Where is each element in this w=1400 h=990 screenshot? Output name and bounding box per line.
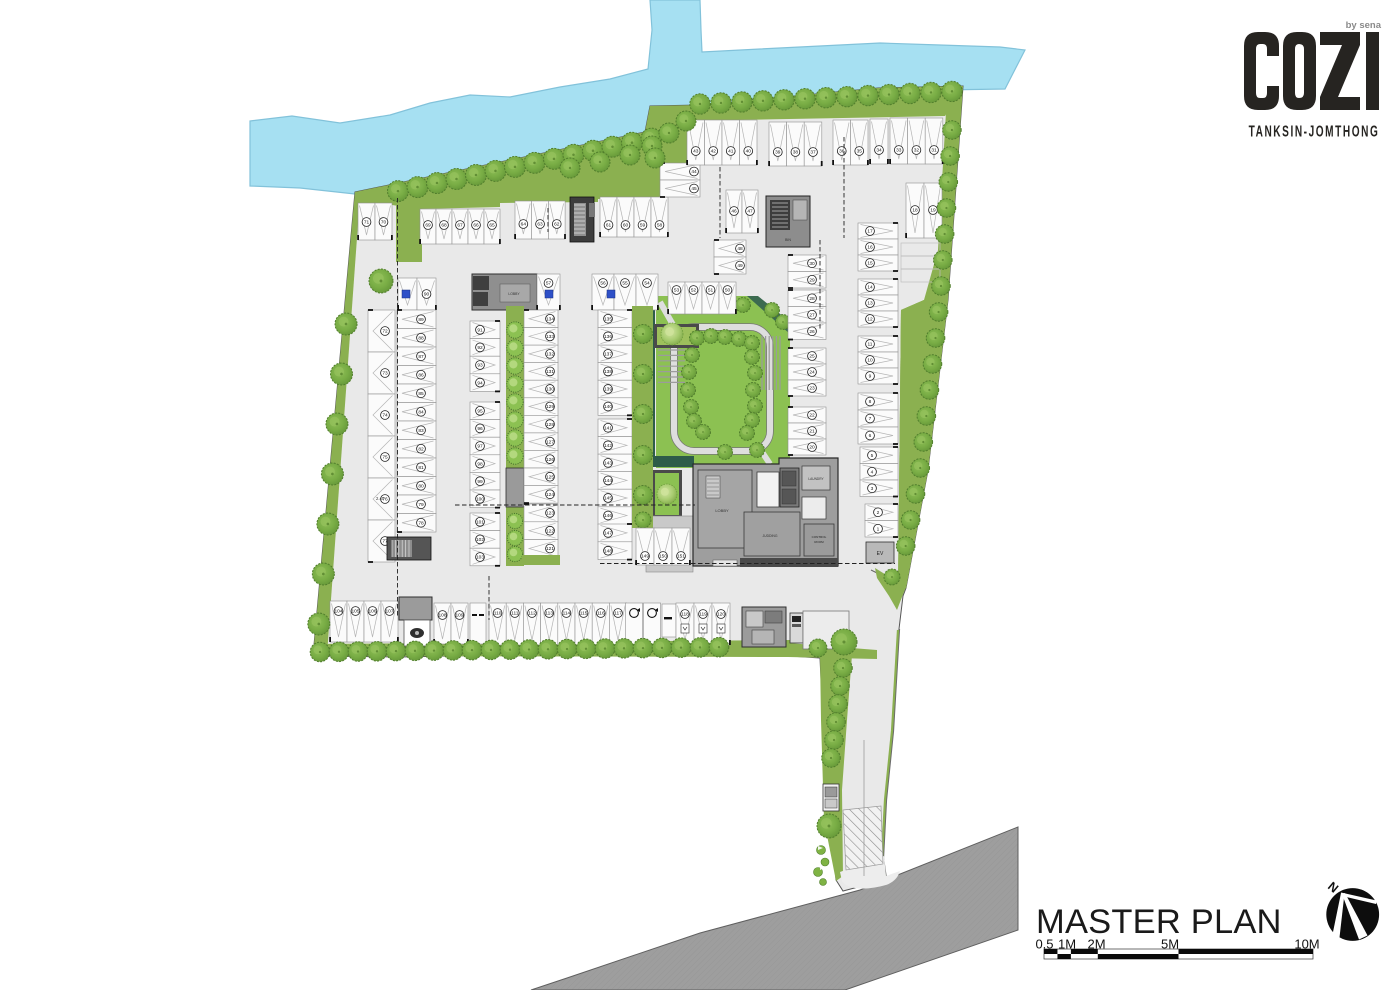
svg-text:103: 103	[476, 555, 484, 561]
svg-text:7: 7	[869, 416, 872, 422]
svg-text:20: 20	[809, 445, 815, 451]
svg-text:124: 124	[546, 492, 554, 498]
svg-text:35: 35	[857, 149, 863, 155]
svg-text:109: 109	[455, 613, 463, 619]
svg-text:60: 60	[623, 223, 629, 229]
svg-text:44: 44	[691, 169, 697, 175]
svg-text:97: 97	[477, 444, 483, 450]
svg-text:51: 51	[708, 288, 714, 294]
svg-text:14: 14	[867, 285, 873, 291]
svg-text:95: 95	[477, 409, 483, 415]
svg-text:146: 146	[604, 513, 612, 519]
svg-text:112: 112	[528, 611, 536, 617]
svg-text:108: 108	[438, 613, 446, 619]
svg-text:41: 41	[728, 149, 734, 155]
svg-text:31: 31	[931, 148, 937, 154]
svg-text:105: 105	[351, 609, 359, 615]
svg-text:10: 10	[867, 358, 873, 364]
svg-text:136: 136	[604, 334, 612, 340]
svg-text:96: 96	[477, 426, 483, 432]
svg-text:6: 6	[869, 433, 872, 439]
svg-text:107: 107	[385, 609, 393, 615]
svg-text:115: 115	[580, 611, 588, 617]
svg-text:132: 132	[546, 352, 554, 358]
svg-text:119: 119	[699, 612, 707, 618]
svg-text:144: 144	[604, 478, 612, 484]
svg-text:EV: EV	[877, 551, 884, 557]
svg-text:138: 138	[604, 369, 612, 375]
svg-text:137: 137	[604, 352, 612, 358]
svg-text:67: 67	[457, 223, 463, 229]
svg-text:121: 121	[546, 546, 554, 552]
svg-text:30: 30	[809, 261, 815, 267]
svg-text:by sena: by sena	[1346, 20, 1382, 31]
svg-text:9: 9	[869, 374, 872, 380]
svg-text:4: 4	[871, 469, 874, 475]
svg-text:94: 94	[477, 380, 483, 386]
svg-text:73: 73	[382, 371, 388, 377]
svg-text:88: 88	[418, 335, 424, 341]
svg-text:89: 89	[418, 317, 424, 323]
svg-text:46: 46	[731, 209, 737, 215]
svg-text:11: 11	[868, 342, 873, 348]
svg-text:126: 126	[546, 457, 554, 463]
svg-text:52: 52	[691, 288, 697, 294]
svg-text:102: 102	[476, 537, 484, 543]
svg-text:BIN: BIN	[785, 238, 791, 242]
svg-text:57: 57	[546, 281, 552, 287]
svg-text:120: 120	[717, 612, 725, 618]
svg-text:JUDDING: JUDDING	[762, 534, 777, 538]
svg-text:28: 28	[809, 296, 815, 302]
svg-text:66: 66	[473, 223, 479, 229]
svg-text:MASTER PLAN: MASTER PLAN	[1036, 903, 1282, 941]
svg-text:111: 111	[511, 611, 519, 617]
svg-text:118: 118	[681, 612, 689, 618]
svg-text:150: 150	[659, 554, 667, 560]
svg-text:0.5: 0.5	[1035, 937, 1053, 952]
svg-text:29: 29	[809, 277, 815, 283]
svg-text:140: 140	[604, 404, 612, 410]
svg-text:2: 2	[877, 510, 880, 516]
svg-text:92: 92	[477, 345, 483, 351]
svg-text:54: 54	[644, 281, 650, 287]
svg-text:98: 98	[477, 461, 483, 467]
svg-text:2.40: 2.40	[376, 496, 385, 501]
svg-text:15: 15	[867, 261, 873, 267]
svg-text:27: 27	[809, 312, 815, 318]
svg-text:62: 62	[554, 222, 560, 228]
svg-text:123: 123	[546, 511, 554, 517]
svg-text:75: 75	[382, 455, 388, 461]
svg-text:ROOM: ROOM	[814, 540, 824, 544]
svg-text:139: 139	[604, 387, 612, 393]
svg-text:101: 101	[476, 520, 484, 526]
svg-text:22: 22	[809, 413, 815, 419]
svg-text:13: 13	[867, 301, 873, 307]
svg-text:83: 83	[418, 428, 424, 434]
svg-text:65: 65	[489, 223, 495, 229]
svg-text:3: 3	[871, 486, 874, 492]
svg-text:116: 116	[597, 611, 605, 617]
svg-text:106: 106	[368, 609, 376, 615]
svg-text:LOBBY: LOBBY	[715, 508, 729, 513]
svg-text:47: 47	[747, 209, 753, 215]
svg-text:8: 8	[869, 399, 872, 405]
svg-text:110: 110	[494, 611, 502, 617]
svg-text:91: 91	[477, 328, 483, 334]
svg-text:70: 70	[381, 220, 387, 226]
svg-text:74: 74	[382, 413, 388, 419]
svg-text:19: 19	[930, 208, 936, 214]
svg-text:69: 69	[425, 223, 431, 229]
svg-text:LAUNDRY: LAUNDRY	[808, 477, 824, 481]
svg-text:59: 59	[640, 223, 646, 229]
svg-text:32: 32	[914, 148, 920, 154]
svg-text:53: 53	[674, 288, 680, 294]
svg-text:114: 114	[563, 611, 571, 617]
svg-text:90: 90	[424, 292, 430, 298]
svg-text:61: 61	[606, 223, 612, 229]
svg-text:81: 81	[418, 465, 424, 471]
svg-text:34: 34	[876, 148, 882, 154]
svg-text:39: 39	[775, 150, 781, 156]
svg-text:10M: 10M	[1294, 937, 1319, 952]
svg-text:129: 129	[546, 404, 554, 410]
svg-text:50: 50	[725, 288, 731, 294]
svg-text:125: 125	[546, 474, 554, 480]
svg-text:55: 55	[622, 281, 628, 287]
svg-text:127: 127	[546, 439, 554, 445]
svg-text:113: 113	[545, 611, 553, 617]
svg-text:99: 99	[477, 479, 483, 485]
svg-text:143: 143	[604, 461, 612, 467]
svg-text:CONTROL: CONTROL	[812, 535, 827, 539]
svg-text:17: 17	[867, 229, 873, 235]
svg-text:25: 25	[809, 354, 815, 360]
svg-text:63: 63	[537, 222, 543, 228]
svg-text:145: 145	[604, 496, 612, 502]
svg-text:24: 24	[809, 370, 815, 376]
svg-text:43: 43	[693, 149, 699, 155]
svg-text:134: 134	[546, 316, 554, 322]
svg-text:141: 141	[604, 425, 612, 431]
svg-text:16: 16	[867, 245, 873, 251]
svg-text:58: 58	[657, 223, 663, 229]
svg-text:87: 87	[418, 354, 424, 360]
svg-text:64: 64	[521, 222, 527, 228]
svg-text:72: 72	[382, 329, 388, 335]
svg-text:26: 26	[809, 329, 815, 335]
svg-text:48: 48	[737, 246, 743, 252]
svg-text:104: 104	[334, 609, 342, 615]
svg-text:LOBBY: LOBBY	[508, 292, 520, 296]
svg-text:128: 128	[546, 422, 554, 428]
svg-text:1: 1	[877, 526, 880, 532]
svg-text:1M: 1M	[1058, 937, 1076, 952]
svg-text:130: 130	[546, 387, 554, 393]
svg-text:142: 142	[604, 443, 612, 449]
svg-text:147: 147	[604, 531, 612, 537]
svg-text:56: 56	[600, 281, 606, 287]
svg-text:86: 86	[418, 372, 424, 378]
svg-text:68: 68	[441, 223, 447, 229]
svg-text:133: 133	[546, 334, 554, 340]
svg-text:12: 12	[867, 317, 873, 323]
svg-text:135: 135	[604, 316, 612, 322]
svg-text:84: 84	[418, 409, 424, 415]
svg-text:18: 18	[912, 208, 918, 214]
svg-text:100: 100	[476, 497, 484, 503]
svg-text:71: 71	[364, 220, 370, 226]
svg-text:49: 49	[737, 263, 743, 269]
svg-text:21: 21	[809, 429, 815, 435]
svg-text:33: 33	[896, 148, 902, 154]
svg-text:80: 80	[418, 483, 424, 489]
svg-text:5M: 5M	[1161, 937, 1179, 952]
svg-text:38: 38	[793, 150, 799, 156]
svg-text:45: 45	[691, 186, 697, 192]
svg-text:78: 78	[418, 520, 424, 526]
svg-text:151: 151	[677, 554, 685, 560]
svg-text:149: 149	[641, 554, 649, 560]
svg-text:42: 42	[711, 149, 717, 155]
svg-text:85: 85	[418, 391, 424, 397]
svg-text:5: 5	[871, 453, 874, 459]
svg-text:93: 93	[477, 363, 483, 369]
svg-text:82: 82	[418, 446, 424, 452]
svg-text:117: 117	[614, 611, 622, 617]
svg-text:37: 37	[810, 150, 816, 156]
svg-text:79: 79	[418, 502, 424, 508]
svg-text:40: 40	[746, 149, 752, 155]
svg-text:131: 131	[546, 369, 554, 375]
svg-text:122: 122	[546, 528, 554, 534]
svg-text:148: 148	[604, 548, 612, 554]
svg-text:2M: 2M	[1087, 937, 1105, 952]
svg-text:23: 23	[809, 386, 815, 392]
svg-text:TANKSIN-JOMTHONG: TANKSIN-JOMTHONG	[1249, 122, 1380, 140]
